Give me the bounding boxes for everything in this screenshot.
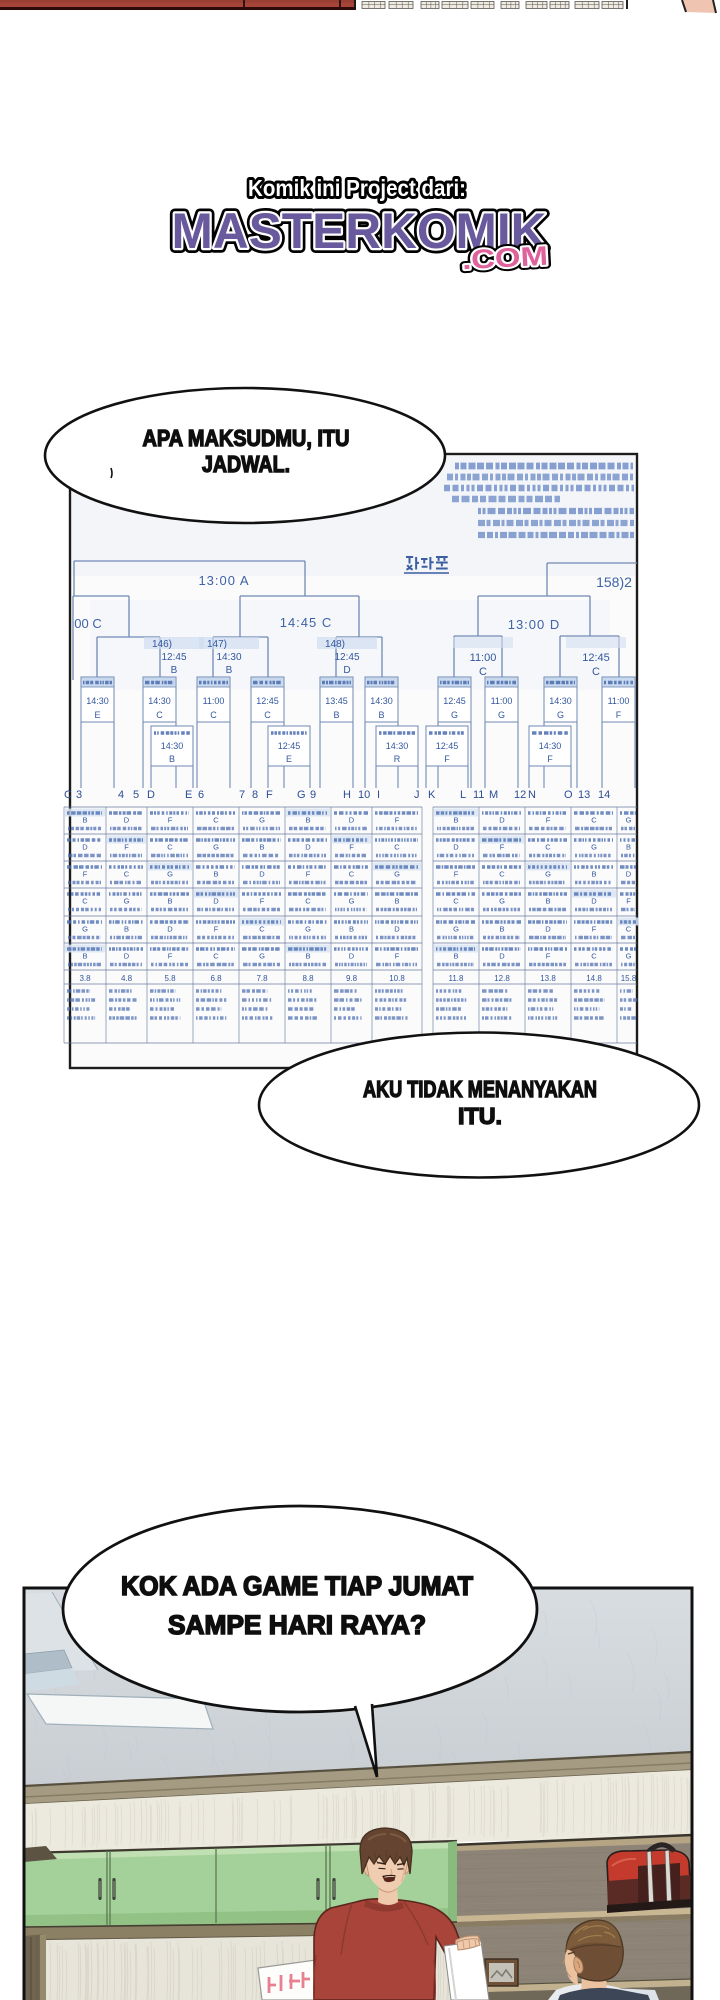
svg-text:G: G [453, 925, 459, 934]
svg-text:F: F [168, 952, 173, 961]
svg-text:G: G [259, 816, 265, 825]
svg-text:146): 146) [152, 639, 172, 650]
svg-text:C: C [64, 789, 72, 801]
svg-text:D: D [349, 816, 355, 825]
svg-text:C: C [545, 843, 551, 852]
svg-text:G: G [394, 870, 400, 879]
svg-text:G: G [259, 952, 265, 961]
svg-text:D: D [349, 952, 355, 961]
svg-text:14:30: 14:30 [549, 696, 572, 706]
svg-text:B: B [213, 870, 218, 879]
svg-text:3.8: 3.8 [79, 974, 91, 983]
svg-text:G: G [124, 897, 130, 906]
svg-text:B: B [167, 897, 172, 906]
svg-text:C: C [167, 843, 173, 852]
svg-text:B: B [626, 843, 631, 852]
svg-text:9: 9 [310, 789, 316, 801]
svg-text:D: D [124, 952, 130, 961]
svg-text:F: F [454, 870, 459, 879]
svg-text:B: B [394, 897, 399, 906]
svg-text:11: 11 [473, 789, 484, 801]
svg-text:F: F [306, 870, 311, 879]
svg-text:KOK ADA GAME TIAP JUMAT: KOK ADA GAME TIAP JUMAT [121, 1571, 473, 1601]
svg-text:B: B [226, 665, 233, 676]
svg-text:158)2: 158)2 [596, 574, 632, 590]
svg-text:12:45: 12:45 [334, 652, 359, 663]
svg-text:G: G [451, 710, 458, 720]
svg-text:5: 5 [133, 789, 139, 801]
svg-text:14:30: 14:30 [539, 741, 562, 751]
svg-text:12:45: 12:45 [443, 696, 466, 706]
svg-text:11:00: 11:00 [491, 696, 513, 706]
svg-text:00 C: 00 C [74, 616, 101, 631]
svg-text:G: G [626, 952, 632, 961]
svg-text:G: G [213, 843, 219, 852]
svg-text:13:00 A: 13:00 A [198, 573, 249, 588]
svg-text:D: D [626, 870, 632, 879]
svg-text:C: C [305, 897, 311, 906]
svg-text:D: D [147, 789, 155, 801]
svg-text:B: B [499, 925, 504, 934]
svg-text:11:00: 11:00 [470, 652, 497, 664]
svg-text:12:45: 12:45 [161, 652, 186, 663]
svg-text:C: C [259, 925, 265, 934]
svg-text:B: B [349, 925, 354, 934]
svg-text:F: F [83, 870, 88, 879]
svg-text:E: E [94, 710, 100, 720]
svg-text:7: 7 [239, 789, 245, 801]
svg-text:C: C [592, 666, 600, 678]
svg-text:G: G [305, 925, 311, 934]
svg-text:B: B [82, 816, 87, 825]
svg-text:JADWAL.: JADWAL. [202, 451, 290, 477]
svg-text:D: D [343, 665, 350, 676]
svg-text:9.8: 9.8 [346, 974, 358, 983]
svg-text:13:45: 13:45 [325, 696, 348, 706]
svg-text:F: F [547, 754, 553, 764]
svg-text:E: E [185, 789, 192, 801]
svg-text:F: F [500, 843, 505, 852]
svg-text:B: B [591, 870, 596, 879]
svg-text:C: C [264, 710, 271, 720]
svg-text:B: B [378, 710, 384, 720]
svg-text:L: L [460, 789, 466, 801]
svg-text:G: G [545, 870, 551, 879]
svg-text:C: C [213, 952, 219, 961]
svg-text:C: C [453, 897, 459, 906]
svg-text:C: C [394, 843, 400, 852]
svg-text:F: F [395, 816, 400, 825]
svg-text:G: G [167, 870, 173, 879]
svg-text:12:45: 12:45 [436, 741, 459, 751]
svg-text:15.8: 15.8 [621, 974, 637, 983]
svg-text:G: G [297, 789, 306, 801]
svg-text:4.8: 4.8 [121, 974, 133, 983]
svg-text:SAMPE HARI RAYA?: SAMPE HARI RAYA? [168, 1610, 426, 1640]
svg-text:14:45 C: 14:45 C [280, 615, 333, 630]
svg-text:148): 148) [325, 639, 345, 650]
svg-text:12: 12 [514, 789, 526, 801]
svg-text:11.8: 11.8 [449, 974, 465, 983]
svg-text:D: D [259, 870, 265, 879]
svg-text:F: F [546, 816, 551, 825]
svg-text:B: B [305, 816, 310, 825]
svg-text:C: C [626, 925, 632, 934]
svg-text:12.8: 12.8 [494, 974, 510, 983]
svg-text:11:00: 11:00 [608, 696, 630, 706]
svg-text:D: D [499, 816, 505, 825]
svg-text:H: H [343, 789, 351, 801]
svg-text:C: C [156, 710, 163, 720]
svg-text:13: 13 [578, 789, 590, 801]
svg-text:8.8: 8.8 [302, 974, 314, 983]
svg-text:I: I [377, 789, 380, 801]
svg-text:D: D [394, 925, 400, 934]
svg-text:F: F [626, 897, 631, 906]
svg-text:13.8: 13.8 [540, 974, 556, 983]
svg-text:C: C [210, 710, 217, 720]
svg-text:5.8: 5.8 [164, 974, 176, 983]
svg-text:D: D [213, 897, 219, 906]
svg-text:D: D [305, 843, 311, 852]
svg-text:13:00 D: 13:00 D [508, 617, 561, 632]
svg-text:4: 4 [118, 789, 124, 801]
svg-text:G: G [82, 925, 88, 934]
svg-text:14: 14 [598, 789, 610, 801]
svg-text:B: B [169, 754, 175, 764]
svg-text:B: B [453, 952, 458, 961]
svg-text:14:30: 14:30 [386, 741, 409, 751]
svg-text:G: G [557, 710, 564, 720]
svg-text:D: D [82, 843, 88, 852]
svg-text:14:30: 14:30 [161, 741, 184, 751]
svg-text:12:45: 12:45 [278, 741, 301, 751]
svg-text:F: F [349, 843, 354, 852]
svg-text:G: G [498, 710, 505, 720]
svg-text:D: D [499, 952, 505, 961]
svg-text:F: F [124, 843, 129, 852]
svg-text:147): 147) [207, 639, 227, 650]
svg-text:C: C [499, 870, 505, 879]
svg-text:C: C [124, 870, 130, 879]
svg-text:B: B [453, 816, 458, 825]
svg-text:12:45: 12:45 [256, 696, 279, 706]
svg-text:14:30: 14:30 [148, 696, 171, 706]
svg-text:ITU.: ITU. [458, 1103, 502, 1129]
svg-text:N: N [528, 789, 536, 801]
svg-text:.COM: .COM [461, 241, 548, 275]
svg-text:C: C [479, 666, 487, 678]
svg-text:14:30: 14:30 [86, 696, 109, 706]
svg-text:AKU TIDAK MENANYAKAN: AKU TIDAK MENANYAKAN [363, 1076, 597, 1102]
svg-text:G: G [499, 897, 505, 906]
svg-text:Komik ini Project dari:: Komik ini Project dari: [248, 175, 466, 201]
svg-text:B: B [82, 952, 87, 961]
svg-text:14.8: 14.8 [586, 974, 602, 983]
svg-text:F: F [266, 789, 273, 801]
svg-text:D: D [124, 816, 130, 825]
svg-text:B: B [259, 843, 264, 852]
svg-text:10: 10 [358, 789, 370, 801]
svg-text:C: C [591, 952, 597, 961]
svg-text:12:45: 12:45 [582, 652, 610, 664]
svg-text:F: F [260, 897, 265, 906]
svg-text:14:30: 14:30 [370, 696, 393, 706]
svg-text:R: R [394, 754, 401, 764]
svg-text:F: F [214, 925, 219, 934]
svg-text:10.8: 10.8 [389, 974, 405, 983]
svg-text:G: G [591, 843, 597, 852]
svg-text:M: M [489, 789, 498, 801]
svg-text:F: F [168, 816, 173, 825]
svg-text:O: O [564, 789, 573, 801]
svg-text:C: C [591, 816, 597, 825]
svg-text:F: F [546, 952, 551, 961]
svg-text:6: 6 [198, 789, 204, 801]
svg-text:F: F [592, 925, 597, 934]
svg-text:F: F [444, 754, 450, 764]
svg-text:J: J [414, 789, 420, 801]
svg-text:E: E [286, 754, 292, 764]
svg-text:F: F [616, 710, 622, 720]
svg-text:8: 8 [252, 789, 258, 801]
svg-text:D: D [545, 925, 551, 934]
svg-text:D: D [453, 843, 459, 852]
svg-text:K: K [428, 789, 436, 801]
svg-text:G: G [626, 816, 632, 825]
svg-text:3: 3 [76, 789, 82, 801]
svg-text:C: C [82, 897, 88, 906]
svg-text:D: D [167, 925, 173, 934]
svg-text:11:00: 11:00 [203, 696, 225, 706]
svg-text:14:30: 14:30 [216, 652, 241, 663]
svg-text:6.8: 6.8 [210, 974, 222, 983]
svg-text:B: B [545, 897, 550, 906]
svg-text:7.8: 7.8 [256, 974, 268, 983]
svg-text:B: B [305, 952, 310, 961]
svg-text:C: C [213, 816, 219, 825]
svg-text:C: C [349, 870, 355, 879]
svg-text:G: G [349, 897, 355, 906]
svg-text:B: B [333, 710, 339, 720]
svg-text:D: D [591, 897, 597, 906]
svg-text:APA MAKSUDMU, ITU: APA MAKSUDMU, ITU [143, 425, 350, 451]
svg-text:B: B [124, 925, 129, 934]
svg-text:B: B [171, 665, 178, 676]
svg-text:F: F [395, 952, 400, 961]
